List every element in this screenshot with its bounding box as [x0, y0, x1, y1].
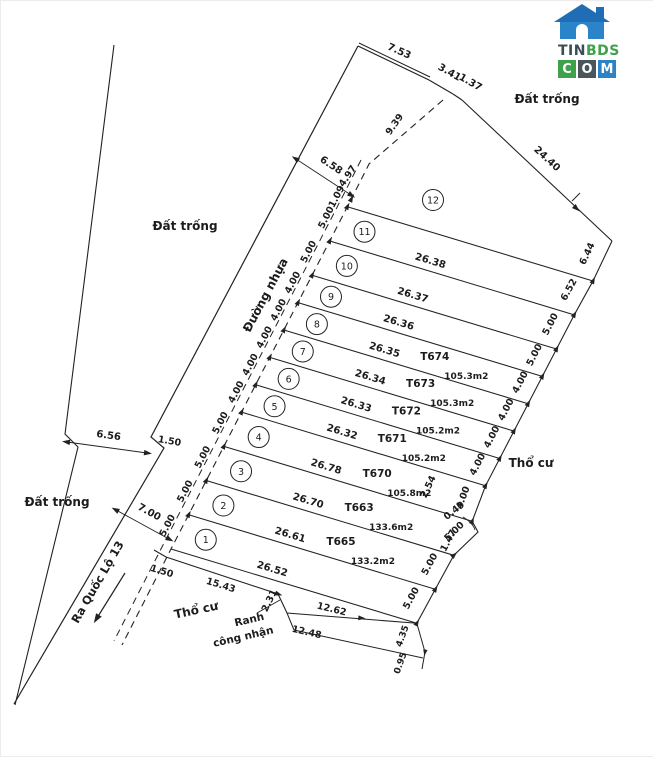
front-width-label: 4.00 [283, 269, 304, 295]
arrowhead [62, 440, 70, 445]
logo-bds: BDS [586, 43, 620, 59]
plot-id-label: T672 [392, 406, 421, 418]
plot-number: 5 [272, 402, 278, 413]
survey-plan-page: 7.533.411.3724.406.446.525.005.004.004.0… [0, 0, 653, 757]
front-tick-arrow [266, 353, 271, 361]
logo-tile-m: M [598, 60, 616, 78]
front-width-label: 4.00 [240, 352, 261, 378]
back-width-label: 5.00 [420, 551, 441, 577]
plot-number: 6 [286, 374, 292, 385]
plot-number: 3 [238, 467, 244, 478]
logo-wordmark: TINBDS [558, 44, 648, 58]
plot-area-label: 105.8m2 [387, 489, 431, 499]
plot-area-label: 133.2m2 [351, 557, 395, 567]
plot-id-label: T665 [326, 536, 355, 548]
front-tick-arrow [220, 442, 225, 450]
back-width-label: 5.00 [525, 342, 546, 368]
plot-area-label: 105.2m2 [416, 427, 460, 437]
plot-number: 12 [427, 196, 439, 207]
jog-label: 1.47 [438, 528, 459, 554]
corner-label: 4.35 [395, 624, 412, 648]
front-tick-arrow [252, 381, 257, 389]
back-width-label: 4.00 [482, 424, 503, 450]
tick [572, 193, 580, 201]
back-width-label: 4.00 [496, 397, 517, 423]
front-tick-arrow [295, 299, 300, 307]
plot-boundary-line [312, 275, 556, 349]
plot-id-label: T670 [363, 468, 392, 480]
plot-area-label: 105.3m2 [430, 399, 474, 409]
lower-line-label: 12.48 [291, 624, 323, 642]
plot-area-label: 105.2m2 [402, 454, 446, 464]
front-width-label: 5.00 [193, 444, 214, 470]
front-tick-arrow [344, 203, 349, 211]
bottom-edge-label: 1.50 [149, 563, 175, 580]
road-step-label: 1.50 [157, 434, 182, 449]
arrowhead [112, 508, 120, 514]
logo-com-tiles: C O M [558, 60, 648, 78]
top-edge-label: 7.53 [386, 42, 413, 62]
highway-direction-label: Ra Quốc Lộ 13 [68, 538, 126, 625]
plot-number: 1 [203, 535, 209, 546]
plot-id-label: T673 [406, 378, 435, 390]
plot-id-label: T671 [378, 433, 407, 445]
back-width-label: 6.44 [578, 241, 598, 267]
dashed-length-label: 9.39 [384, 112, 406, 138]
corner-label: 0.95 [393, 651, 410, 675]
back-width-label: 4.00 [510, 369, 531, 395]
logo-tile-c: C [558, 60, 576, 78]
road-name-label: Đường nhựa [240, 256, 291, 335]
plot-boundary-line [330, 241, 575, 315]
survey-plan-svg: 7.533.411.3724.406.446.525.005.004.004.0… [1, 1, 653, 756]
region-label-dat-trong-bottom: Đất trống [24, 495, 89, 509]
region-label-tho-cu-right: Thổ cư [509, 455, 554, 470]
top-edge-341 [429, 80, 453, 94]
corner-closing-edge [417, 623, 425, 669]
back-width-label: 6.52 [559, 277, 580, 303]
road-width-lower: 7.00 [136, 502, 163, 524]
road-width-bottom: 6.56 [96, 429, 122, 443]
back-width-label: 5.00 [401, 585, 422, 611]
arrowhead [144, 450, 152, 455]
front-tick-arrow [309, 271, 314, 279]
ranh-label: công nhận [212, 624, 275, 650]
plot-area-label: 133.6m2 [369, 523, 413, 533]
plot-number: 9 [328, 292, 334, 303]
highway-arrowhead [94, 613, 102, 623]
plot-number: 7 [300, 347, 306, 358]
dimension-arrow-line [67, 442, 147, 453]
logo-tile-o: O [578, 60, 596, 78]
front-tick-arrow [238, 408, 243, 416]
plot-area-label: 105.3m2 [444, 372, 488, 382]
logo-tin: TIN [558, 43, 586, 59]
plot-number: 11 [358, 227, 370, 238]
plot-boundary-line [284, 330, 528, 404]
plot-id-label: T674 [420, 351, 449, 363]
region-label-tho-cu-bottom: Thổ cư [173, 598, 220, 622]
tinbds-logo: TINBDS C O M [552, 4, 648, 78]
front-width-label: 4.00 [226, 379, 247, 405]
back-width-label: 5.00 [540, 311, 561, 337]
front-width-label: 4.00 [255, 324, 276, 350]
plot-number: 2 [220, 501, 226, 512]
house-icon [552, 4, 616, 40]
front-width-label: 4.00 [269, 297, 290, 323]
top-edge-label: 1.37 [457, 72, 484, 94]
front-tick-arrow [203, 477, 208, 485]
outer-parcel-line [15, 45, 114, 705]
top-edge-137 [453, 94, 462, 100]
front-tick-arrow [326, 237, 331, 245]
plot-number: 4 [256, 433, 262, 444]
front-tick-arrow [185, 511, 190, 519]
front-width-label: 5.00 [175, 478, 196, 504]
arrowhead [347, 191, 355, 198]
front-width-label: 5.00 [210, 410, 231, 436]
plot-boundary-line [298, 303, 542, 377]
plot-number: 10 [341, 261, 353, 272]
road-width-top: 6.58 [318, 154, 345, 177]
plot-id-label: T663 [345, 502, 374, 514]
plot-boundary-line [270, 357, 514, 431]
region-label-dat-trong-left: Đất trống [152, 219, 217, 233]
plot-number: 8 [314, 320, 320, 331]
plot-boundary-line [347, 207, 593, 281]
front-width-label: 5.00 [299, 239, 320, 265]
plot-boundary-line [256, 385, 500, 459]
front-tick-arrow [280, 326, 285, 334]
region-label-dat-trong-top: Đất trống [514, 92, 579, 106]
right-edge-2440 [462, 100, 612, 241]
tick-arrow [423, 649, 427, 656]
back-width-label: 4.00 [468, 451, 489, 477]
